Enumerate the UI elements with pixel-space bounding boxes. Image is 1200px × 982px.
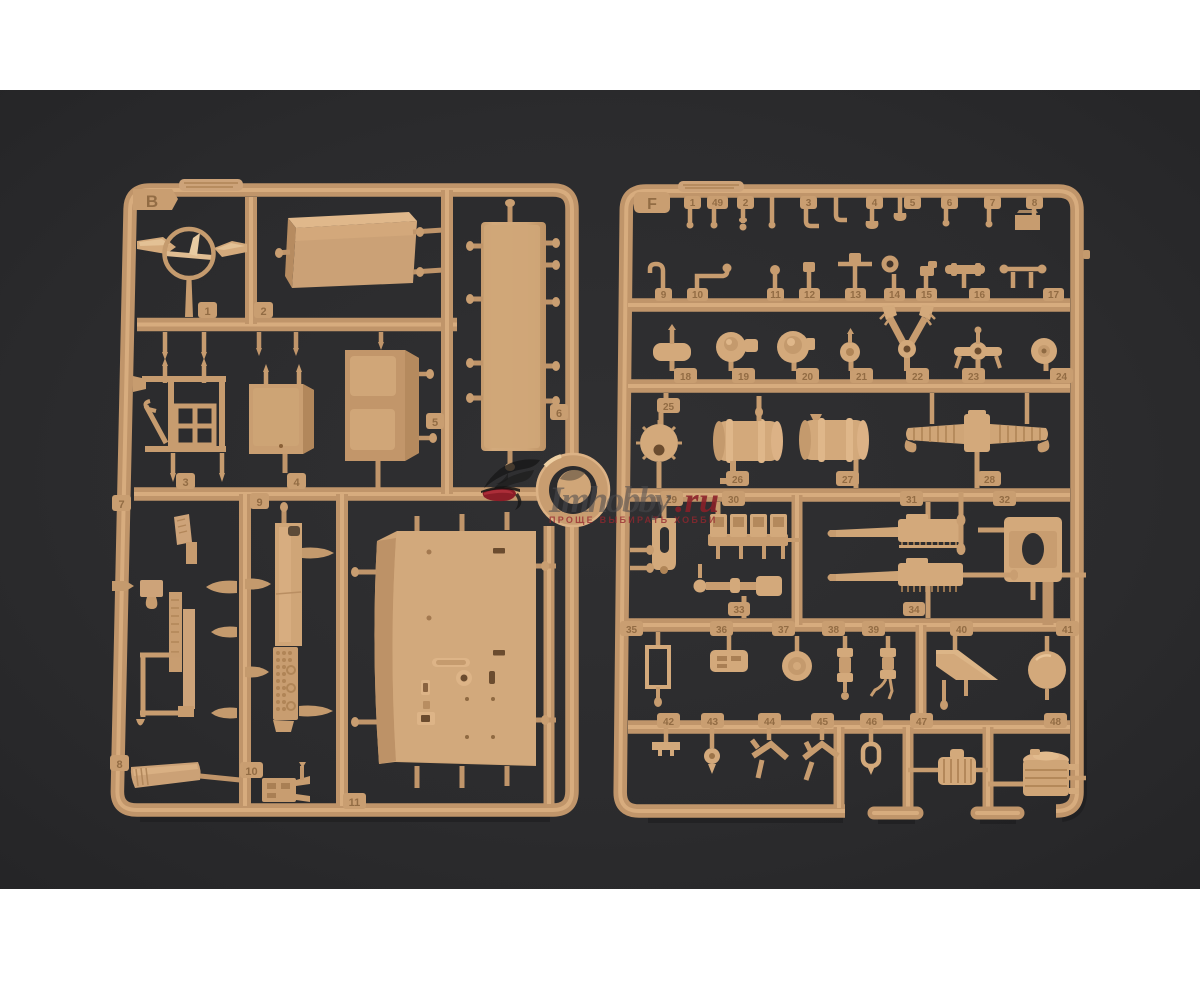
svg-text:8: 8 (116, 759, 122, 771)
svg-text:1: 1 (690, 198, 696, 209)
svg-text:9: 9 (256, 497, 262, 509)
svg-text:6: 6 (556, 408, 562, 420)
svg-text:23: 23 (968, 372, 980, 383)
svg-text:4: 4 (872, 198, 878, 209)
svg-text:6: 6 (947, 198, 953, 209)
svg-text:27: 27 (842, 475, 854, 486)
svg-text:15: 15 (921, 290, 933, 301)
svg-text:47: 47 (916, 717, 928, 728)
svg-text:24: 24 (1056, 372, 1068, 383)
svg-text:10: 10 (692, 290, 704, 301)
svg-text:11: 11 (349, 797, 361, 809)
svg-text:12: 12 (804, 290, 816, 301)
svg-text:32: 32 (999, 495, 1011, 506)
svg-text:21: 21 (856, 372, 868, 383)
svg-text:43: 43 (707, 717, 719, 728)
svg-text:30: 30 (728, 495, 740, 506)
svg-text:1: 1 (204, 306, 210, 318)
svg-text:41: 41 (1062, 625, 1074, 636)
svg-text:37: 37 (778, 625, 790, 636)
svg-text:9: 9 (661, 290, 667, 301)
svg-text:F: F (647, 196, 657, 213)
svg-text:B: B (146, 192, 158, 211)
svg-text:40: 40 (956, 625, 968, 636)
svg-text:7: 7 (118, 499, 124, 511)
svg-text:34: 34 (908, 605, 920, 616)
svg-text:5: 5 (910, 198, 916, 209)
svg-text:38: 38 (828, 625, 840, 636)
svg-text:3: 3 (182, 477, 188, 489)
svg-text:42: 42 (663, 717, 675, 728)
svg-text:17: 17 (1048, 290, 1060, 301)
svg-text:14: 14 (889, 290, 901, 301)
svg-text:10: 10 (245, 766, 257, 778)
svg-text:28: 28 (984, 475, 996, 486)
svg-text:3: 3 (806, 198, 812, 209)
svg-text:5: 5 (432, 417, 438, 429)
svg-text:18: 18 (680, 372, 692, 383)
svg-text:33: 33 (733, 605, 745, 616)
svg-text:.ru: .ru (675, 480, 719, 520)
svg-text:ПРОЩЕ ВЫБИРАТЬ ХОББИ: ПРОЩЕ ВЫБИРАТЬ ХОББИ (549, 515, 717, 525)
svg-text:8: 8 (1032, 198, 1038, 209)
svg-text:26: 26 (732, 475, 744, 486)
svg-text:36: 36 (716, 625, 728, 636)
svg-text:31: 31 (906, 495, 918, 506)
svg-text:20: 20 (802, 372, 814, 383)
svg-text:35: 35 (626, 625, 638, 636)
svg-text:16: 16 (974, 290, 986, 301)
svg-text:4: 4 (293, 477, 300, 489)
svg-text:39: 39 (868, 625, 880, 636)
svg-text:2: 2 (260, 306, 266, 318)
svg-text:19: 19 (738, 372, 750, 383)
svg-text:44: 44 (764, 717, 776, 728)
svg-text:13: 13 (850, 290, 862, 301)
svg-text:2: 2 (743, 198, 749, 209)
svg-text:48: 48 (1050, 717, 1062, 728)
svg-text:22: 22 (912, 372, 924, 383)
svg-text:46: 46 (866, 717, 878, 728)
svg-text:11: 11 (770, 290, 781, 301)
svg-text:49: 49 (712, 198, 724, 209)
svg-text:7: 7 (990, 198, 996, 209)
svg-text:25: 25 (663, 402, 675, 413)
svg-text:45: 45 (817, 717, 829, 728)
